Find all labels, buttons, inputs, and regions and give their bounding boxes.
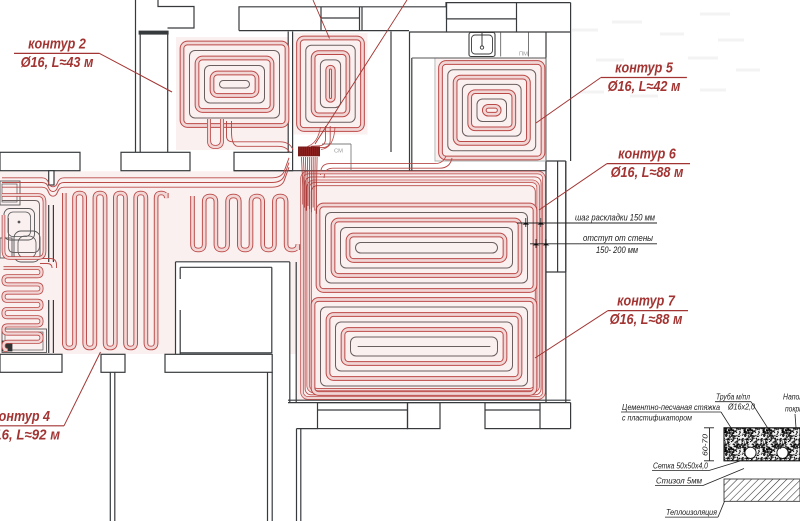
svg-text:контур 6: контур 6 xyxy=(618,147,677,163)
svg-text:отступ от стены: отступ от стены xyxy=(583,233,653,243)
svg-text:СМ: СМ xyxy=(334,149,343,155)
svg-text:контур 7: контур 7 xyxy=(617,294,676,310)
svg-text:Цементно-песчаная стяжка: Цементно-песчаная стяжка xyxy=(622,402,720,412)
svg-text:Ø16, L≈92 м: Ø16, L≈92 м xyxy=(0,427,60,443)
svg-text:с пластификатором: с пластификатором xyxy=(622,413,692,423)
svg-text:покрытие: покрытие xyxy=(785,404,800,414)
svg-text:Сетка 50х50х4,0: Сетка 50х50х4,0 xyxy=(653,460,708,470)
svg-text:Ø16, L≈88 м: Ø16, L≈88 м xyxy=(611,165,684,181)
svg-text:шаг раскладки 150 мм: шаг раскладки 150 мм xyxy=(575,213,656,223)
svg-text:150- 200 мм: 150- 200 мм xyxy=(596,245,639,255)
svg-text:контур 5: контур 5 xyxy=(615,61,674,77)
svg-text:контур 2: контур 2 xyxy=(28,36,86,52)
svg-text:Напольное покрытие: Напольное покрытие xyxy=(783,392,800,402)
svg-text:Ø16х2,0: Ø16х2,0 xyxy=(727,402,755,412)
svg-text:Теплоизоляция: Теплоизоляция xyxy=(666,507,717,517)
svg-text:Ø16, L≈42 м: Ø16, L≈42 м xyxy=(608,79,681,95)
svg-text:Ø16, L≈43 м: Ø16, L≈43 м xyxy=(21,55,94,71)
svg-text:ПМ: ПМ xyxy=(519,52,528,58)
svg-text:60-70: 60-70 xyxy=(703,434,710,456)
svg-text:Стизол 5мм: Стизол 5мм xyxy=(656,475,702,485)
svg-text:Труба м/пл: Труба м/пл xyxy=(716,392,750,402)
svg-text:контур 4: контур 4 xyxy=(0,409,50,425)
svg-text:Ø16, L≈88 м: Ø16, L≈88 м xyxy=(610,312,683,328)
